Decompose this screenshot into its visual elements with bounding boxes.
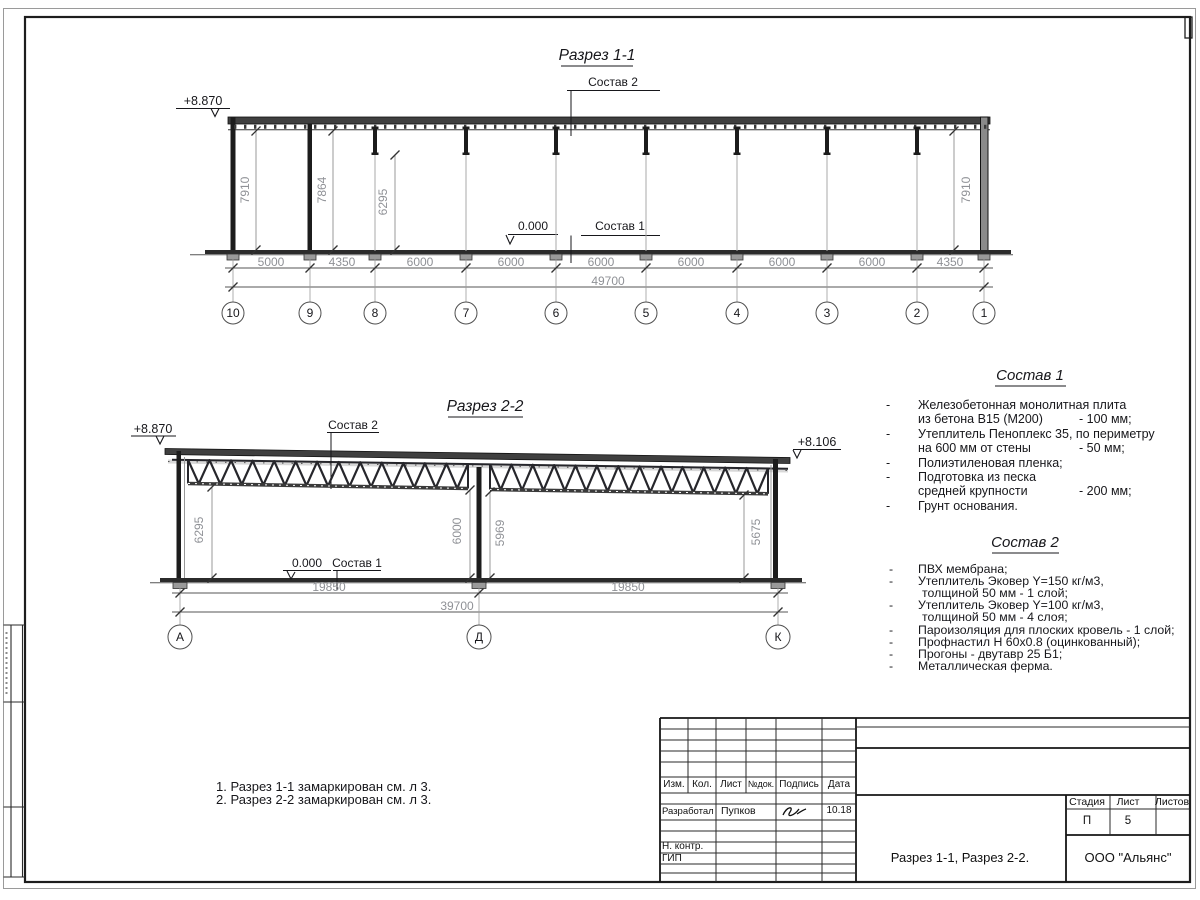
grid-bubble-label: А [176,631,184,643]
grid-bubble-label: 10 [226,307,239,319]
layers1-title: Состав 1 [996,368,1064,383]
section2-elevation-right: +8.106 [798,436,837,449]
stamp-col-podpis: Подпись [779,780,819,790]
grid-bubble-label: 3 [824,307,831,319]
section2-vdim: 6295 [193,517,205,544]
grid-bubble-label: 7 [463,307,470,319]
stamp-col-kol: Кол. [692,780,712,790]
grid-bubble-label: 1 [981,307,988,319]
section1-dim: 6000 [769,256,796,268]
layers1-item-line: на 600 мм от стены [918,442,1031,455]
layers1-item-line: из бетона В15 (М200) [918,413,1043,426]
bullet: - [886,500,890,513]
stamp-developed-label: Разработал [662,807,714,817]
layers1-item-line: Полиэтиленовая пленка; [918,457,1063,470]
layers1-item-line: Грунт основания. [918,500,1018,513]
section1-dim: 6000 [498,256,525,268]
section1-vdim: 6295 [377,189,389,216]
stamp-stage-value: П [1083,816,1091,828]
section-1-1-drawing [176,66,1013,287]
section2-layers-floor-label: Состав 1 [332,557,382,569]
grid-bubble-label: 2 [914,307,921,319]
bullet: - [886,471,890,484]
stamp-col-data: Дата [828,780,850,790]
stamp-sheet-value: 5 [1125,816,1131,828]
bullet: - [886,428,890,441]
section1-vdim: 7910 [960,177,972,204]
layers1-item-line: Подготовка из песка [918,471,1036,484]
layers1-item-value: - 200 мм; [1079,485,1132,498]
section2-vdim: 5969 [494,520,506,547]
grid-bubble-label: 9 [307,307,314,319]
section1-vdim: 7864 [316,177,328,204]
section2-total-dim: 39700 [440,600,473,612]
stamp-doc-title: Разрез 1-1, Разрез 2-2. [891,851,1029,864]
grid-bubble-label: 6 [553,307,560,319]
layers2-title: Состав 2 [991,535,1059,550]
section1-zero-label: 0.000 [518,220,548,232]
stamp-stage-label: Стадия [1069,797,1105,808]
section1-layers-floor-label: Состав 1 [595,220,645,232]
stamp-date: 10.18 [826,806,851,816]
stamp-col-list: Лист [720,780,742,790]
section1-title: Разрез 1-1 [559,48,636,64]
section1-dim: 6000 [859,256,886,268]
stamp-sheets-label: Листов [1155,797,1189,808]
stamp-col-ndok: №док. [748,780,774,789]
section2-zero-label: 0.000 [292,557,322,569]
bullet: - [889,599,893,611]
layers1-item-line: Утеплитель Пеноплекс 35, по периметру [918,428,1155,441]
section1-dim: 6000 [678,256,705,268]
grid-bubble-label: 8 [372,307,379,319]
grid-bubble-label: К [775,631,782,643]
section1-elevation-left: +8.870 [184,95,223,108]
section1-total-dim: 49700 [591,275,624,287]
section2-title: Разрез 2-2 [447,399,524,415]
grid-bubble-label: Д [475,631,483,643]
layers2-item-line: толщиной 50 мм - 4 слоя; [922,611,1068,623]
grid-bubble-label: 5 [643,307,650,319]
grid-bubble-label: 4 [734,307,741,319]
section1-dim: 6000 [407,256,434,268]
section1-vdim: 7910 [239,177,251,204]
section1-dim: 4350 [329,256,356,268]
stamp-col-izm: Изм. [663,780,684,790]
grid-bubbles [168,302,995,649]
stamp-sheet-label: Лист [1117,797,1140,808]
layers2-item-line: Металлическая ферма. [918,660,1053,672]
layers1-item-value: - 50 мм; [1079,442,1125,455]
stamp-company: ООО "Альянс" [1085,851,1172,864]
stamp-ncontr-label: Н. контр. [662,842,703,852]
section2-elevation-left: +8.870 [134,423,173,436]
stamp-developed-name: Пупков [721,806,756,817]
note-line: 2. Разрез 2-2 замаркирован см. л 3. [216,793,431,806]
signature-mark [783,808,806,816]
layers1-item-line: Железобетонная монолитная плита [918,399,1126,412]
section2-dim: 19850 [611,581,644,593]
section2-vdim: 5675 [750,519,762,546]
section1-layers-roof-label: Состав 2 [588,76,638,88]
section2-dim: 19850 [312,581,345,593]
section1-dim: 4350 [937,256,964,268]
layers1-item-value: - 100 мм; [1079,413,1132,426]
section2-vdim: 6000 [451,518,463,545]
layers1-item-line: средней крупности [918,485,1028,498]
stamp-gip-label: ГИП [662,854,682,864]
section1-dim: 5000 [258,256,285,268]
bullet: - [889,575,893,587]
section2-layers-roof-label: Состав 2 [328,419,378,431]
section1-dim: 6000 [588,256,615,268]
drawing-sheet: Разрез 1-1 +8.870 Состав 2 0.000 Состав … [0,0,1200,900]
bullet: - [889,660,893,672]
bullet: - [886,457,890,470]
bullet: - [886,399,890,412]
